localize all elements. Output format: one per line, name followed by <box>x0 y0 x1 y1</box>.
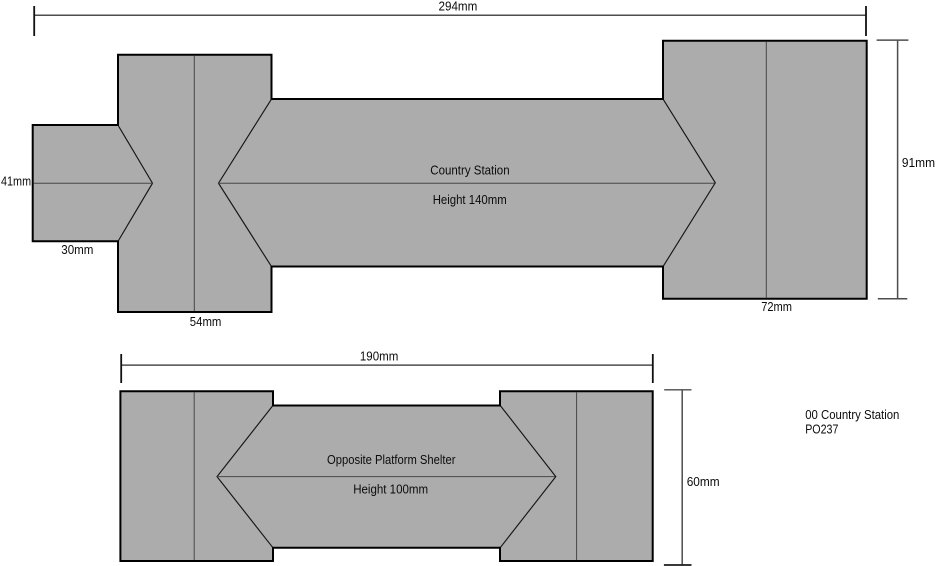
svg-text:00 Country Station: 00 Country Station <box>805 407 899 422</box>
svg-text:PO237: PO237 <box>805 422 838 437</box>
svg-text:54mm: 54mm <box>190 315 222 329</box>
svg-text:30mm: 30mm <box>61 243 93 257</box>
svg-text:Opposite Platform Shelter: Opposite Platform Shelter <box>327 453 456 467</box>
svg-text:Height 140mm: Height 140mm <box>433 193 507 207</box>
svg-text:91mm: 91mm <box>902 156 935 170</box>
svg-text:41mm: 41mm <box>1 174 31 188</box>
svg-text:190mm: 190mm <box>360 350 398 364</box>
svg-text:Height 100mm: Height 100mm <box>353 482 428 496</box>
svg-text:294mm: 294mm <box>439 0 478 14</box>
svg-text:Country Station: Country Station <box>430 164 509 178</box>
svg-text:60mm: 60mm <box>687 475 720 489</box>
svg-text:72mm: 72mm <box>761 300 792 314</box>
